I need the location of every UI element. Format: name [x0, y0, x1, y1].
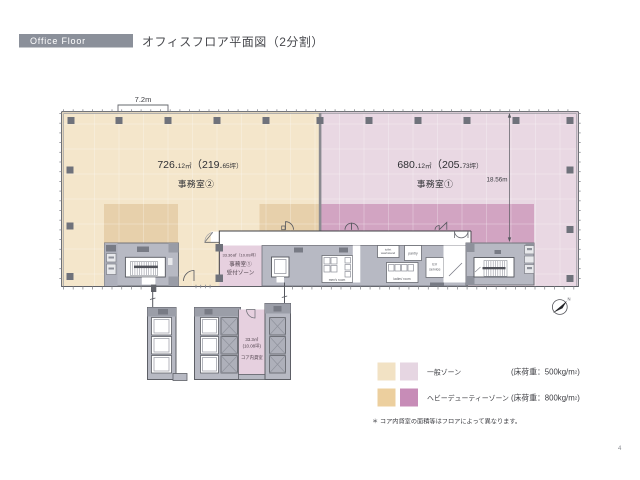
svg-text:men's room: men's room	[329, 278, 346, 282]
svg-text:N: N	[568, 297, 571, 302]
svg-text:18.56m: 18.56m	[486, 177, 507, 184]
svg-text:(床荷重：500kg/m2): (床荷重：500kg/m2)	[511, 367, 580, 377]
svg-text:washstand: washstand	[381, 251, 396, 255]
svg-text:コア内貸室: コア内貸室	[241, 354, 264, 361]
svg-text:(床荷重：800kg/m2): (床荷重：800kg/m2)	[511, 393, 580, 403]
svg-text:EV: EV	[432, 263, 437, 267]
svg-text:事務室①: 事務室①	[229, 260, 252, 268]
svg-text:service: service	[429, 268, 440, 272]
svg-text:受付ゾーン: 受付ゾーン	[227, 269, 255, 277]
svg-text:オフィスフロア平面図（2分割）: オフィスフロア平面図（2分割）	[142, 34, 324, 49]
svg-text:一般ゾーン: 一般ゾーン	[427, 368, 461, 377]
svg-text:33.36㎡（10.09坪）: 33.36㎡（10.09坪）	[222, 252, 258, 258]
svg-text:＊ コア内貸室の面積等はフロアによって異なります。: ＊ コア内貸室の面積等はフロアによって異なります。	[372, 418, 521, 426]
svg-text:ladies' room: ladies' room	[393, 277, 410, 281]
svg-text:7.2m: 7.2m	[135, 95, 152, 104]
svg-text:Office Floor: Office Floor	[30, 36, 86, 46]
svg-text:pantry: pantry	[408, 252, 418, 256]
svg-text:事務室②: 事務室②	[178, 178, 214, 189]
svg-text:ヘビーデューティーゾーン: ヘビーデューティーゾーン	[427, 394, 509, 403]
svg-text:33.3㎡: 33.3㎡	[245, 336, 259, 342]
svg-text:事務室①: 事務室①	[417, 178, 453, 189]
svg-text:(10.08坪): (10.08坪)	[243, 343, 262, 350]
